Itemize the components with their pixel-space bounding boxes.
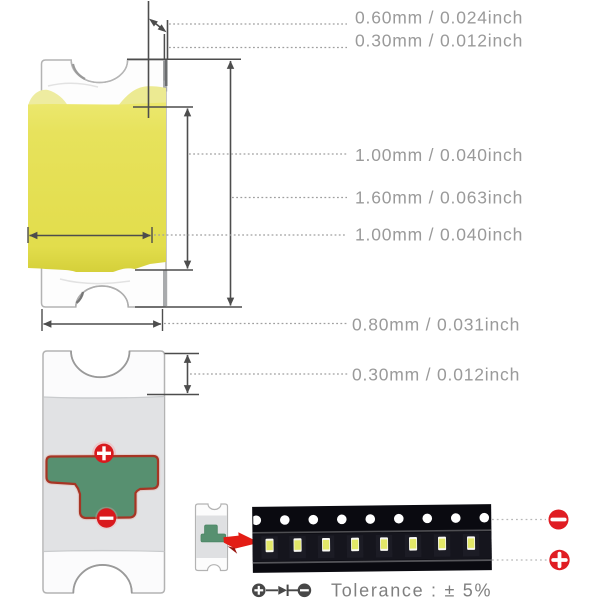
svg-text:0.30mm / 0.012inch: 0.30mm / 0.012inch: [355, 31, 523, 51]
svg-text:0.80mm / 0.031inch: 0.80mm / 0.031inch: [352, 315, 520, 335]
svg-text:0.30mm / 0.012inch: 0.30mm / 0.012inch: [352, 365, 520, 385]
svg-text:1.00mm / 0.040inch: 1.00mm / 0.040inch: [355, 225, 523, 245]
svg-text:1.60mm / 0.063inch: 1.60mm / 0.063inch: [355, 188, 523, 208]
svg-text:0.60mm / 0.024inch: 0.60mm / 0.024inch: [355, 8, 523, 28]
svg-text:Tolerance : ± 5%: Tolerance : ± 5%: [331, 581, 492, 600]
svg-text:1.00mm / 0.040inch: 1.00mm / 0.040inch: [355, 145, 523, 165]
